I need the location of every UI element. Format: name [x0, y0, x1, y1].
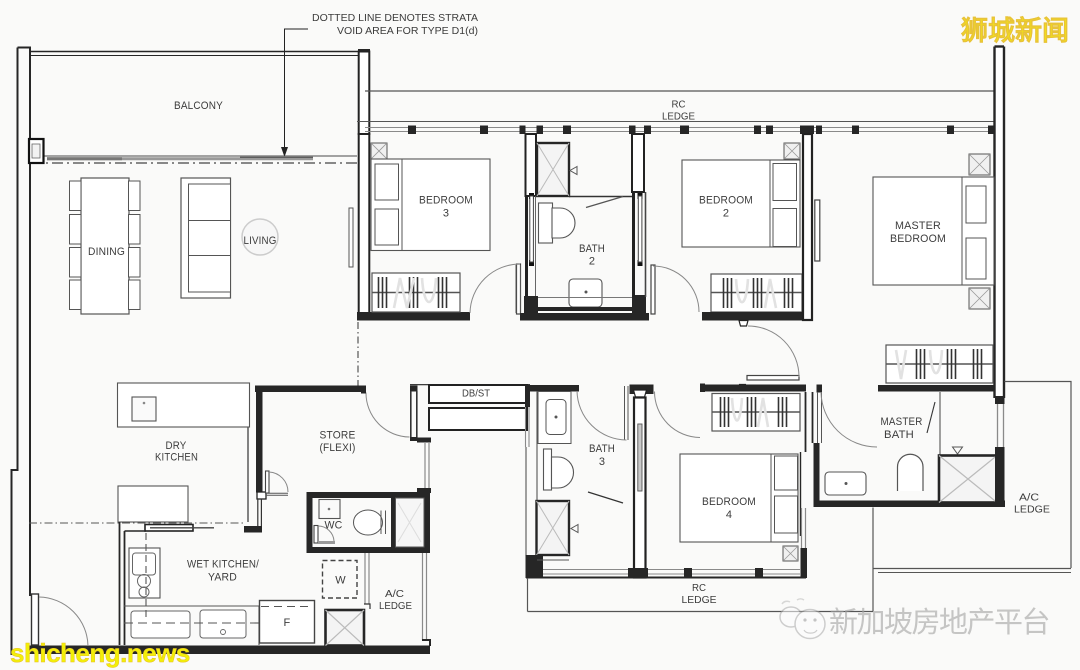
svg-text:BEDROOM: BEDROOM — [890, 233, 946, 245]
svg-text:狮城新闻: 狮城新闻 — [961, 15, 1069, 46]
svg-text:shicheng.news: shicheng.news — [10, 638, 190, 668]
svg-text:VOID AREA FOR TYPE D1(d): VOID AREA FOR TYPE D1(d) — [337, 25, 478, 37]
svg-text:(FLEXI): (FLEXI) — [320, 442, 356, 454]
svg-text:2: 2 — [589, 256, 595, 268]
svg-text:LEDGE: LEDGE — [662, 112, 695, 123]
svg-text:WC: WC — [325, 520, 343, 532]
svg-text:3: 3 — [599, 456, 605, 468]
svg-text:W: W — [335, 575, 346, 587]
svg-text:BEDROOM: BEDROOM — [699, 195, 753, 207]
svg-text:RC: RC — [692, 583, 706, 594]
svg-text:DOTTED LINE DENOTES STRATA: DOTTED LINE DENOTES STRATA — [312, 12, 478, 24]
svg-text:BATH: BATH — [589, 443, 615, 455]
svg-text:YARD: YARD — [208, 572, 237, 584]
svg-text:RC: RC — [672, 100, 686, 111]
svg-text:4: 4 — [726, 509, 732, 521]
svg-text:MASTER: MASTER — [881, 416, 923, 428]
svg-text:BEDROOM: BEDROOM — [702, 496, 756, 508]
svg-text:DINING: DINING — [88, 246, 125, 258]
svg-text:BEDROOM: BEDROOM — [419, 195, 473, 207]
svg-text:DRY: DRY — [166, 440, 187, 452]
svg-text:3: 3 — [443, 208, 449, 220]
svg-text:新加坡房地产平台: 新加坡房地产平台 — [829, 606, 1049, 639]
svg-text:LEDGE: LEDGE — [1014, 505, 1050, 516]
svg-text:LEDGE: LEDGE — [682, 595, 717, 606]
svg-text:A/C: A/C — [385, 589, 404, 600]
svg-text:KITCHEN: KITCHEN — [155, 452, 198, 464]
svg-text:WET KITCHEN/: WET KITCHEN/ — [187, 559, 260, 571]
svg-text:STORE: STORE — [320, 430, 356, 442]
svg-text:MASTER: MASTER — [895, 220, 941, 232]
svg-text:BATH: BATH — [579, 243, 605, 255]
svg-text:F: F — [284, 617, 291, 629]
svg-text:BALCONY: BALCONY — [174, 100, 223, 112]
svg-text:LEDGE: LEDGE — [379, 601, 412, 612]
svg-text:A/C: A/C — [1019, 493, 1039, 504]
svg-text:DB/ST: DB/ST — [462, 389, 490, 400]
svg-text:2: 2 — [723, 208, 729, 220]
svg-text:BATH: BATH — [884, 429, 914, 441]
svg-text:LIVING: LIVING — [244, 235, 277, 247]
